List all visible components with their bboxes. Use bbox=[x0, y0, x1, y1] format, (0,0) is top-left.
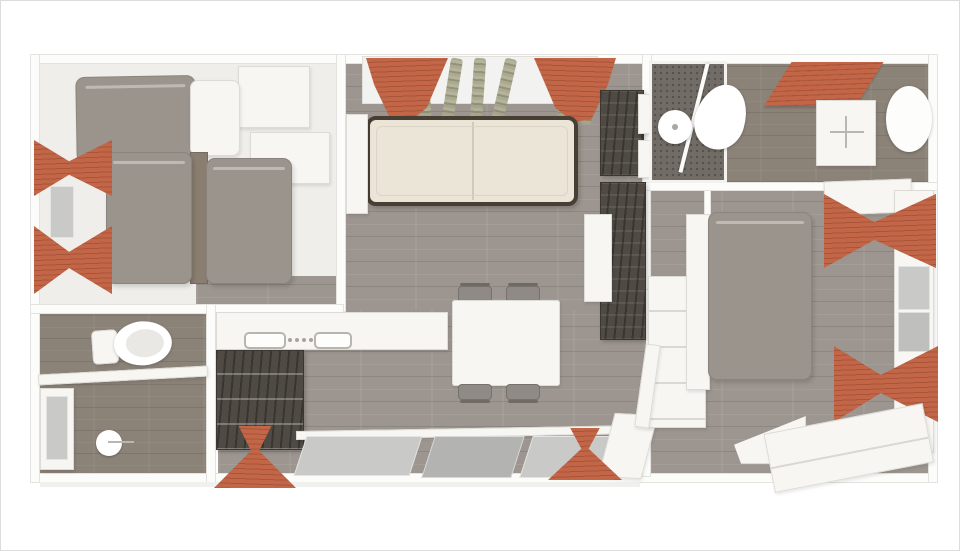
wall-kids-bedroom-right bbox=[336, 54, 346, 312]
wall-top bbox=[30, 54, 938, 64]
wall-right bbox=[928, 54, 938, 483]
wall-hallway-left-upper bbox=[642, 190, 651, 290]
ground-shadow bbox=[40, 482, 640, 487]
living-room-floor bbox=[344, 62, 646, 312]
floorplan-image bbox=[0, 0, 960, 551]
wall-shower-room-left bbox=[642, 54, 652, 190]
wc-floor bbox=[38, 312, 214, 477]
wall-shower-room-bottom bbox=[642, 182, 938, 191]
wall-wc-right bbox=[206, 304, 216, 483]
master-bedroom-floor bbox=[650, 186, 938, 477]
kitchen-dining-floor bbox=[218, 310, 646, 477]
wall-left bbox=[30, 54, 40, 483]
wall-master-bedroom-left bbox=[704, 190, 711, 290]
wall-kids-bedroom-bottom bbox=[30, 304, 344, 314]
wall-hallway-left-lower bbox=[642, 420, 651, 477]
shower-room-floor bbox=[650, 62, 938, 182]
kids-bedroom-floor bbox=[38, 62, 340, 308]
